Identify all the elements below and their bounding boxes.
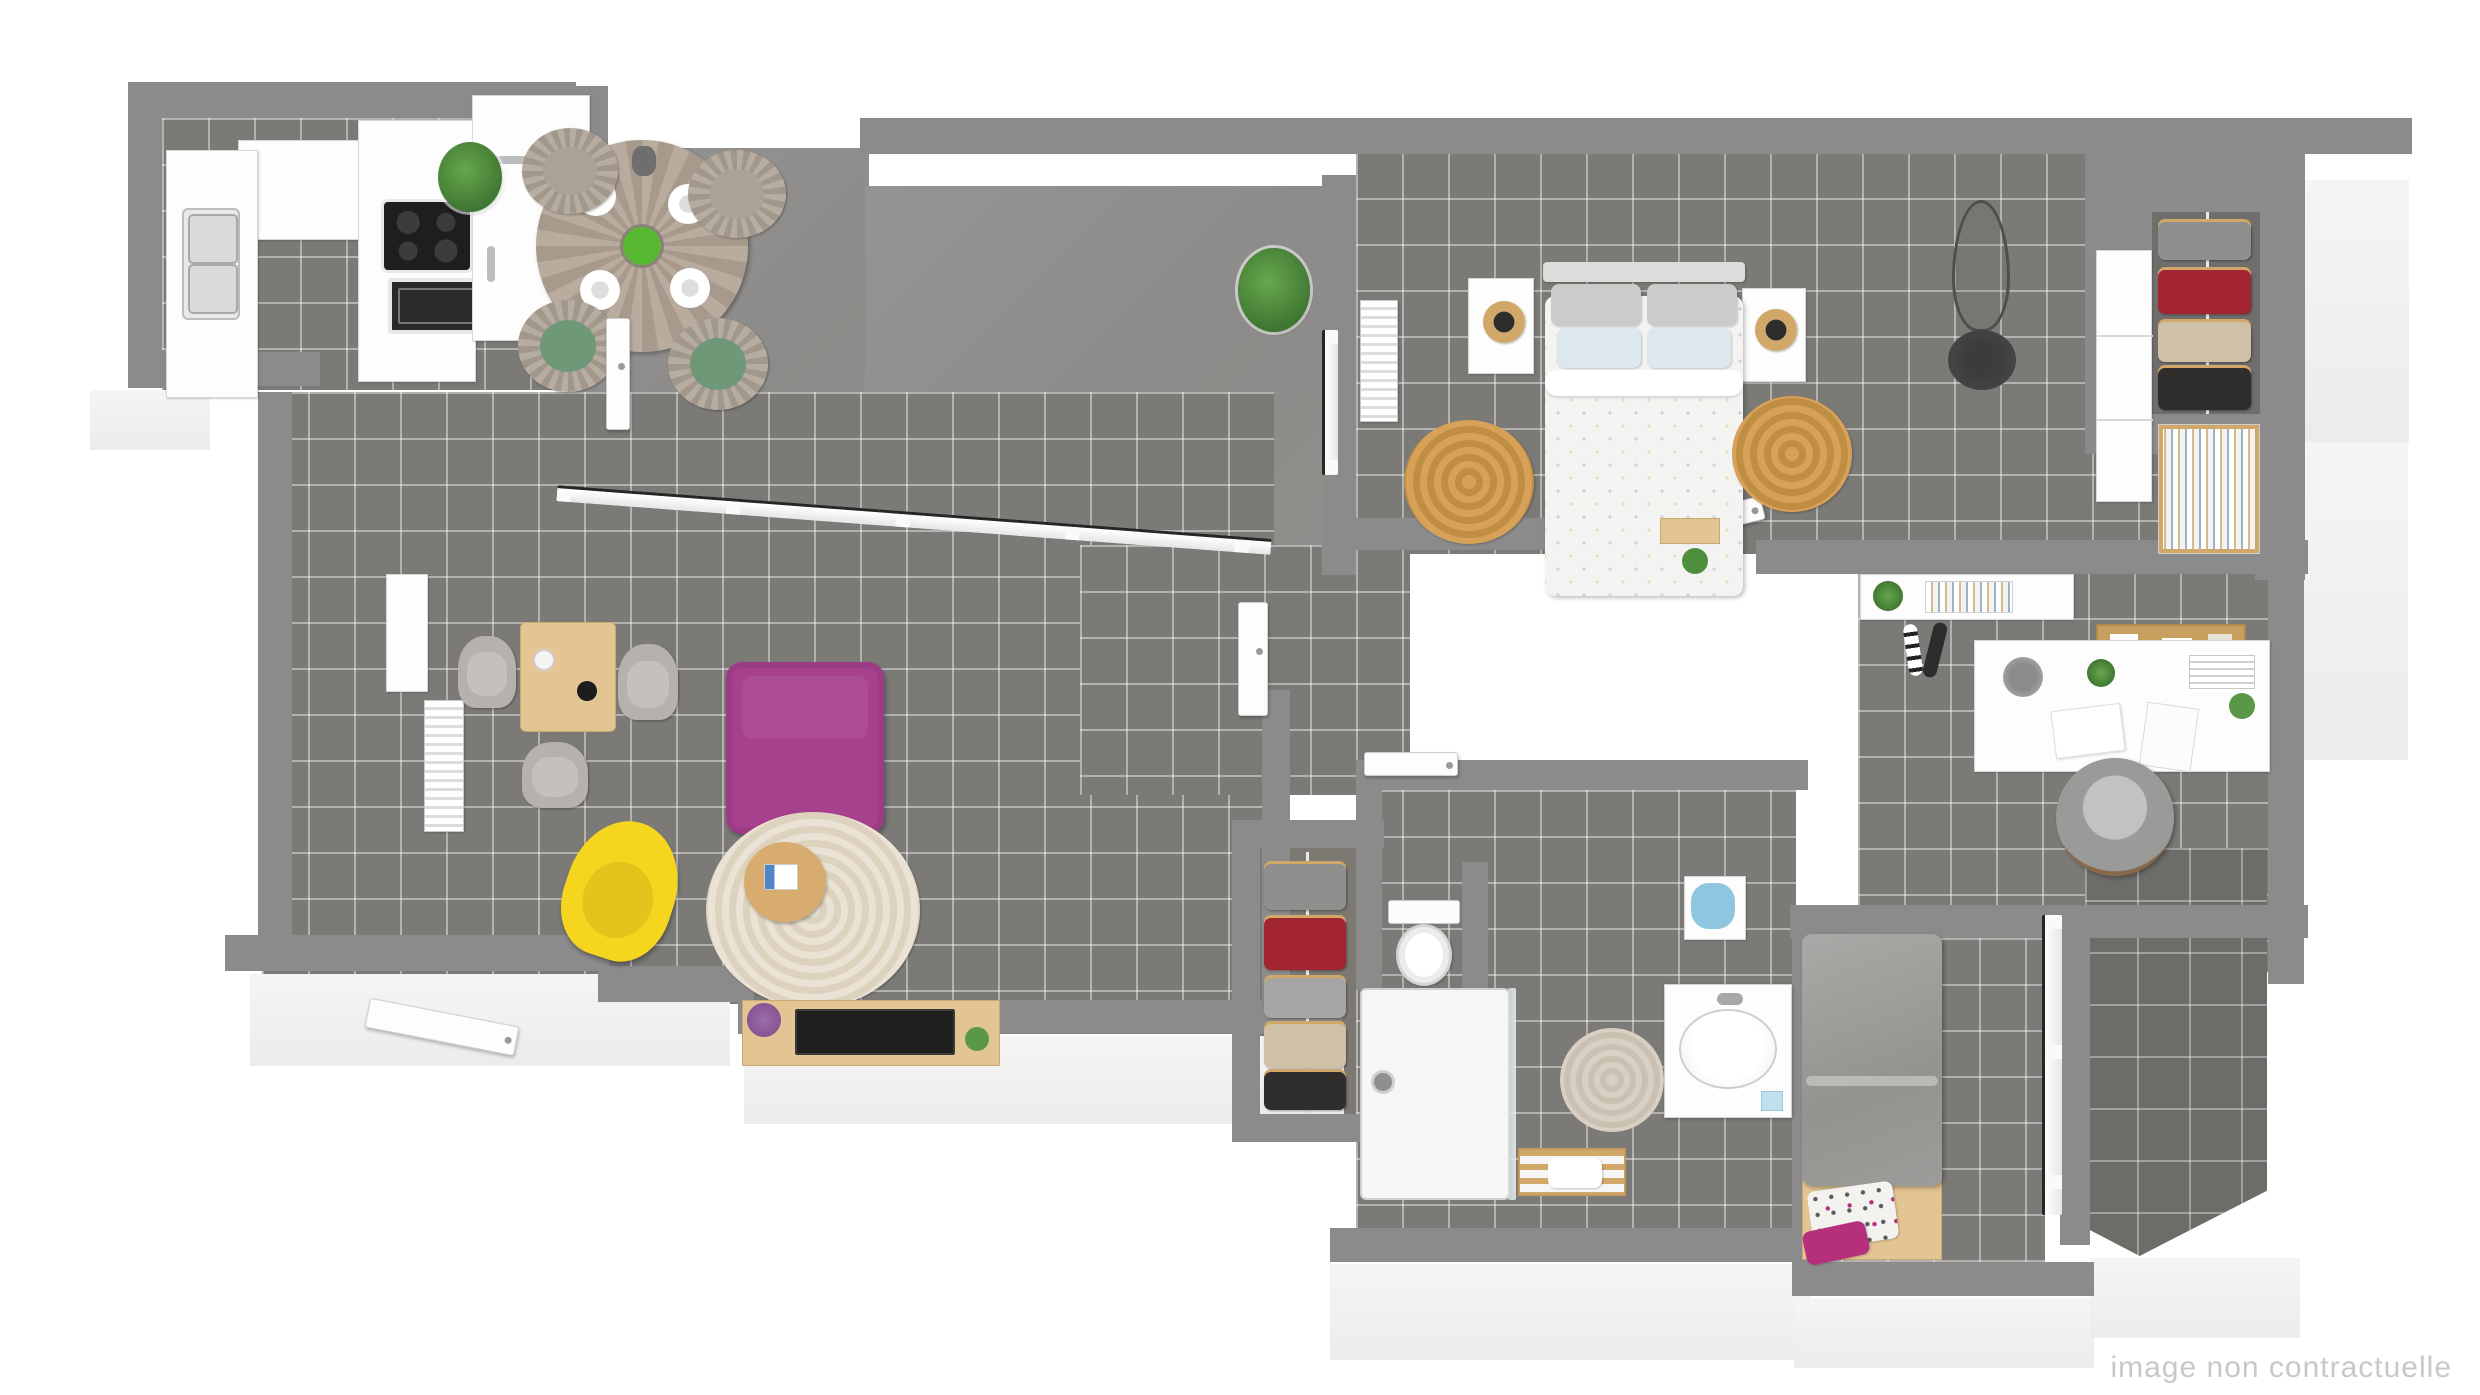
watermark: image non contractuelle (2110, 1351, 2452, 1385)
wall-segment (1330, 1228, 1814, 1262)
terrace-chair (688, 150, 786, 238)
shower-tray (1360, 988, 1510, 1200)
wall-segment (128, 82, 162, 388)
terrace-chair-cushion (518, 300, 618, 392)
wall-segment (1462, 862, 1488, 990)
desk (1974, 640, 2270, 772)
papers (2050, 703, 2125, 759)
pillow-gray (1647, 284, 1737, 326)
desk-lamp (2003, 657, 2043, 697)
foot-bench (1660, 518, 1720, 544)
tv (795, 1009, 955, 1055)
chair (458, 636, 516, 708)
tv-console (742, 1000, 1000, 1066)
console-plant (965, 1027, 989, 1051)
bedroom-terrace-window (1322, 330, 1338, 475)
table-lamp (577, 681, 597, 701)
clothes-gray-2 (1264, 978, 1347, 1018)
dress-form-base (1948, 330, 2016, 390)
wash-basin (1679, 1009, 1777, 1089)
wall-segment (1232, 820, 1260, 1142)
plate-setting (670, 268, 710, 308)
nightstand (1468, 278, 1534, 374)
kitchen-terrace-door (606, 318, 630, 430)
desk-plant-2 (2229, 693, 2255, 719)
wall-segment (2060, 905, 2090, 1245)
bed-plant (1682, 548, 1708, 574)
pillow-gray (1551, 284, 1641, 326)
toiletries (1761, 1091, 1783, 1111)
clothes-red (1264, 918, 1347, 970)
notebook (2139, 702, 2199, 773)
purple-flowers (747, 1003, 781, 1037)
wardrobe-door-line (2097, 335, 2153, 337)
toilet-tank (1388, 900, 1460, 924)
desk-plant (2087, 659, 2115, 687)
balcony-window (2042, 915, 2062, 1215)
shower-glass (1508, 988, 1516, 1200)
single-bed (1802, 934, 1942, 1260)
induction-cooktop (384, 202, 470, 270)
clothes-gray (2158, 222, 2251, 260)
fridge-handle-2 (487, 246, 495, 282)
nightstand (1742, 288, 1806, 382)
jute-rug (1404, 420, 1534, 544)
potted-plant (1238, 248, 1310, 332)
kitchen-sink (182, 208, 240, 320)
paper-tray (2189, 655, 2255, 689)
toilet (1396, 924, 1452, 986)
oven (388, 278, 484, 334)
chair (522, 742, 588, 808)
wardrobe (2096, 250, 2152, 502)
clothes-black (1264, 1072, 1347, 1110)
wall-segment (1792, 1262, 2094, 1296)
vanity (1664, 984, 1792, 1118)
jute-rug (1732, 396, 1852, 512)
headboard (1543, 262, 1745, 282)
coffee-table (744, 842, 826, 922)
clothes-beige (1264, 1024, 1347, 1068)
hallway-door (1238, 602, 1268, 716)
clothes-black (2158, 368, 2251, 410)
wall-segment (1356, 790, 1382, 990)
dressing-closet (1258, 852, 1354, 1114)
blue-towels (1691, 883, 1735, 929)
dining-table (520, 622, 616, 732)
shelf-books (1925, 581, 2013, 613)
exterior-wall-face (90, 390, 210, 450)
double-bed (1543, 262, 1745, 600)
bath-rug (1560, 1028, 1664, 1132)
wall-mirror (386, 574, 428, 692)
duvet-fold-line (1806, 1076, 1938, 1086)
pillow-blue (1647, 328, 1731, 368)
clothes-gray (1264, 864, 1347, 910)
laundry-basket (1684, 876, 1746, 940)
pitcher (632, 146, 656, 176)
chair (618, 644, 678, 720)
floor-plan-render: image non contractuelle (0, 0, 2480, 1395)
wardrobe-door-line (2097, 419, 2153, 421)
exterior-wall-face (2304, 440, 2408, 760)
exterior-wall-face (2305, 180, 2409, 442)
exterior-wall-face (1330, 1264, 1810, 1360)
purple-sofa (726, 662, 884, 834)
office-chair (2056, 758, 2174, 876)
rattan-lamp (1755, 309, 1797, 351)
desk-shelf (1860, 574, 2074, 620)
exterior-wall-face (2090, 1258, 2300, 1338)
pillow-blue (1557, 328, 1641, 368)
terrace-chair-cushion (668, 318, 768, 410)
bathroom-door (1364, 752, 1458, 776)
fruit-bowl (620, 224, 664, 268)
potted-plant (438, 142, 502, 212)
wall-segment (258, 392, 292, 942)
wall-segment (860, 118, 2412, 154)
faucet (1717, 993, 1743, 1005)
duvet-fold (1545, 370, 1743, 396)
book (764, 864, 798, 890)
white-towel (1548, 1158, 1602, 1188)
clothes-beige (2158, 322, 2251, 362)
open-closet (2152, 212, 2260, 414)
single-duvet (1802, 934, 1942, 1186)
exterior-wall-face (1794, 1298, 2094, 1368)
terrace-chair (522, 128, 618, 214)
rattan-lamp (1483, 301, 1525, 343)
bookshelf (2158, 424, 2260, 554)
towel-rack (1518, 1148, 1626, 1196)
radiator (424, 700, 464, 832)
shelf-plant (1873, 581, 1903, 611)
clothes-red (2158, 270, 2251, 314)
mug (535, 651, 553, 669)
bedroom-radiator (1360, 300, 1398, 422)
